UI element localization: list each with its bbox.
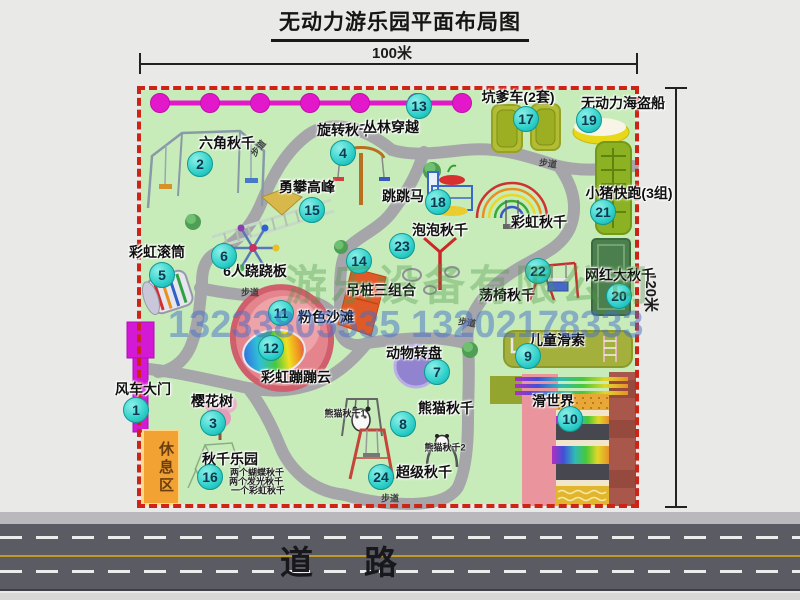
road-shoulder <box>0 512 800 524</box>
road: 道 路 <box>0 524 800 591</box>
marker-pink-beach: 11 <box>268 300 294 326</box>
label-peak-climbing: 勇攀高峰 <box>279 177 335 197</box>
label-big-swing: 网红大秋千 <box>585 265 655 285</box>
path-label-3: 步道 <box>241 286 259 299</box>
road-bottom-edge <box>0 593 800 600</box>
marker-hexagon-swing: 2 <box>187 151 213 177</box>
label-pit-cars: 坑爹车(2套) <box>481 87 554 107</box>
marker-slide-world: 10 <box>557 406 583 432</box>
label-jungle-crossing: 丛林穿越 <box>363 117 419 137</box>
label-pink-beach: 粉色沙滩 <box>298 307 354 327</box>
label-rainbow-swing: 彩虹秋千 <box>511 212 567 232</box>
page-title-wrap: 无动力游乐园平面布局图 <box>0 6 800 42</box>
marker-bubble-swing: 23 <box>389 233 415 259</box>
dimension-tick-top-right <box>636 53 638 74</box>
label-bubble-swing: 泡泡秋千 <box>412 220 468 240</box>
sublabel-panda-swing-1: 熊猫秋千1 <box>324 407 365 420</box>
path-label-2: 步道 <box>538 155 558 170</box>
label-hanging-piles: 吊桩三组合 <box>346 280 416 300</box>
label-panda-swing: 熊猫秋千 <box>418 398 474 418</box>
page-title: 无动力游乐园平面布局图 <box>271 6 529 42</box>
marker-rotary-swing: 4 <box>330 140 356 166</box>
sublabel-swing-park-3: 一个彩虹秋千 <box>231 484 285 497</box>
marker-chair-swing: 22 <box>525 258 551 284</box>
marker-panda-swing: 8 <box>390 411 416 437</box>
marker-jungle-crossing: 13 <box>406 93 432 119</box>
dimension-tick-right-bottom <box>665 506 687 508</box>
marker-peak-climbing: 15 <box>299 197 325 223</box>
dimension-tick-top-left <box>139 53 141 74</box>
park-layout-map: 无动力游乐园平面布局图 100米 120米 <box>0 0 800 600</box>
marker-animal-turntable: 7 <box>424 359 450 385</box>
road-label: 道 路 <box>143 536 543 584</box>
dimension-tick-right-top <box>665 87 687 89</box>
marker-piggy-run: 21 <box>590 199 616 225</box>
marker-pirate-ship: 19 <box>576 107 602 133</box>
label-rainbow-roller: 彩虹滚筒 <box>129 242 185 262</box>
marker-cherry-tree: 3 <box>200 410 226 436</box>
dimension-label-top: 100米 <box>352 42 432 63</box>
marker-rainbow-cloud: 12 <box>258 335 284 361</box>
dimension-line-top <box>140 63 637 65</box>
sublabel-panda-swing-2: 熊猫秋千2 <box>424 441 465 454</box>
label-cherry-tree: 樱花树 <box>191 391 233 411</box>
marker-rainbow-roller: 5 <box>149 262 175 288</box>
marker-hanging-piles: 14 <box>346 248 372 274</box>
marker-windmill-gate: 1 <box>123 397 149 423</box>
label-jumping-horse: 跳跳马 <box>382 186 424 206</box>
label-rainbow-cloud: 彩虹蹦蹦云 <box>261 367 331 387</box>
rest-area-label: 休息区 <box>146 436 176 500</box>
marker-six-seesaw: 6 <box>211 243 237 269</box>
path-label-5: 步道 <box>381 492 399 505</box>
marker-swing-park: 16 <box>197 464 223 490</box>
label-chair-swing: 荡椅秋千 <box>479 285 535 305</box>
marker-pit-cars: 17 <box>513 106 539 132</box>
dimension-line-right <box>675 88 677 508</box>
marker-big-swing: 20 <box>606 283 632 309</box>
marker-jumping-horse: 18 <box>425 189 451 215</box>
label-windmill-gate: 风车大门 <box>115 379 171 399</box>
label-super-swing: 超级秋千 <box>396 462 452 482</box>
marker-kids-zipline: 9 <box>515 343 541 369</box>
marker-super-swing: 24 <box>368 464 394 490</box>
path-label-4: 步道 <box>457 314 477 329</box>
